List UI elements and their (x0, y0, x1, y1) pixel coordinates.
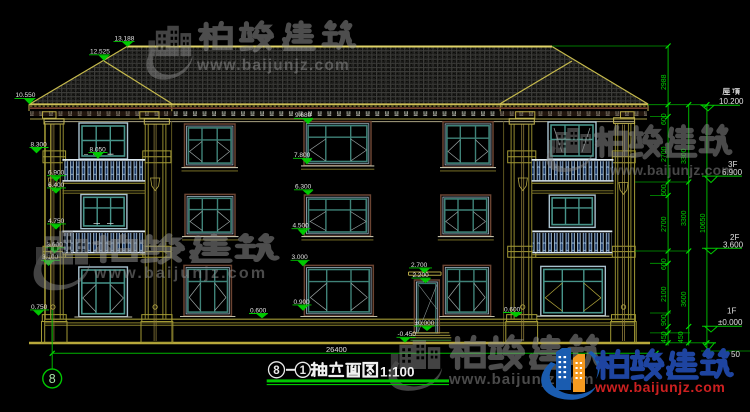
svg-text:8: 8 (273, 365, 280, 377)
svg-text:600: 600 (661, 258, 668, 270)
svg-text:2700: 2700 (661, 216, 668, 232)
svg-text:10650: 10650 (700, 213, 707, 233)
svg-text:www.baijunjz.com: www.baijunjz.com (594, 379, 725, 395)
svg-text:www.baijunjz.com: www.baijunjz.com (448, 371, 594, 388)
svg-text:www.baijunjz.com: www.baijunjz.com (196, 57, 350, 74)
svg-text:3300: 3300 (681, 210, 688, 226)
svg-text:900: 900 (661, 314, 668, 326)
svg-text:50: 50 (731, 350, 740, 359)
svg-text:2988: 2988 (661, 74, 668, 90)
svg-text:8: 8 (49, 372, 56, 386)
svg-text:600: 600 (661, 113, 668, 125)
svg-text:1: 1 (300, 365, 307, 377)
svg-text:1F: 1F (727, 307, 736, 316)
svg-text:10.200: 10.200 (719, 97, 744, 106)
svg-text:450: 450 (678, 331, 685, 343)
svg-text:2100: 2100 (661, 286, 668, 302)
svg-text:600: 600 (661, 184, 668, 196)
svg-text:1:100: 1:100 (380, 365, 415, 380)
svg-text:26400: 26400 (326, 345, 347, 354)
svg-text:www.baijunjz.com: www.baijunjz.com (93, 265, 267, 282)
svg-text:www.baijunjz.com: www.baijunjz.com (609, 162, 734, 178)
svg-text:450: 450 (661, 331, 668, 343)
svg-text:3600: 3600 (681, 291, 688, 307)
svg-text:±0.000: ±0.000 (718, 318, 743, 327)
